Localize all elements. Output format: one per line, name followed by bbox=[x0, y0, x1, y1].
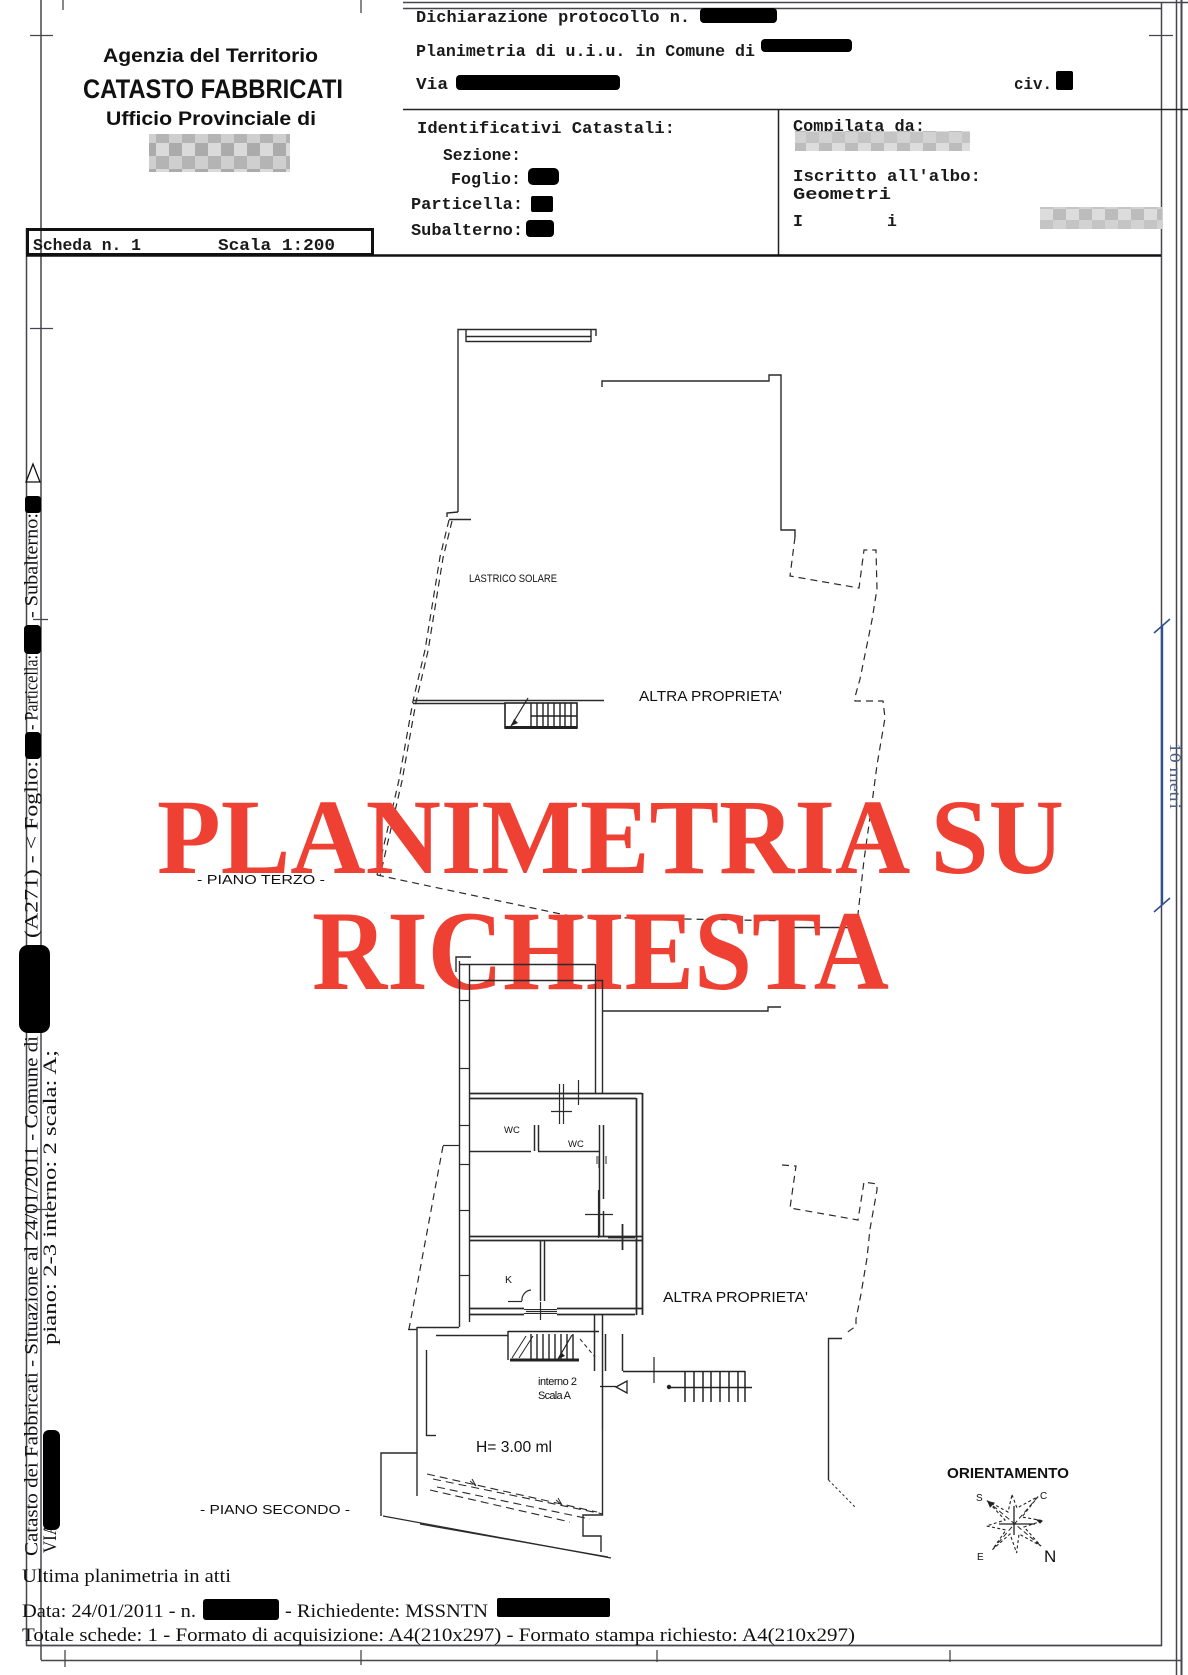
svg-text:N: N bbox=[1044, 1547, 1056, 1566]
svg-text:Scheda n. 1: Scheda n. 1 bbox=[33, 236, 141, 255]
svg-text:Dichiarazione protocollo n.: Dichiarazione protocollo n. bbox=[416, 8, 690, 27]
svg-text:Ufficio Provinciale di: Ufficio Provinciale di bbox=[106, 109, 316, 130]
svg-text:piano: 2-3 interno: 2 scala: A: piano: 2-3 interno: 2 scala: A; bbox=[40, 1050, 61, 1345]
svg-text:Sezione:: Sezione: bbox=[443, 146, 521, 165]
svg-text:Data: 24/01/2011 - n.: Data: 24/01/2011 - n. bbox=[22, 1601, 196, 1622]
svg-text:Scala 1:200: Scala 1:200 bbox=[218, 236, 335, 255]
svg-text:- Particella:: - Particella: bbox=[22, 655, 43, 730]
svg-text:E: E bbox=[977, 1552, 984, 1563]
svg-text:H= 3.00 ml: H= 3.00 ml bbox=[476, 1439, 552, 1456]
svg-text:Totale schede: 1 - Formato di: Totale schede: 1 - Formato di acquisizio… bbox=[22, 1625, 855, 1646]
svg-text:S: S bbox=[976, 1493, 983, 1504]
svg-text:- PIANO SECONDO -: - PIANO SECONDO - bbox=[200, 1502, 350, 1517]
svg-text:ALTRA PROPRIETA': ALTRA PROPRIETA' bbox=[639, 689, 782, 705]
svg-text:Iscritto all'albo:: Iscritto all'albo: bbox=[793, 167, 981, 186]
svg-text:LASTRICO SOLARE: LASTRICO SOLARE bbox=[469, 573, 557, 585]
svg-text:PLANIMETRIA SU: PLANIMETRIA SU bbox=[157, 779, 1064, 897]
svg-text:Subalterno:: Subalterno: bbox=[411, 221, 523, 240]
svg-text:I: I bbox=[793, 212, 803, 231]
svg-text:Via: Via bbox=[416, 75, 448, 94]
svg-text:Scala A: Scala A bbox=[538, 1390, 572, 1402]
svg-text:(A271) - < Foglio:: (A271) - < Foglio: bbox=[22, 761, 43, 938]
svg-text:10 metri: 10 metri bbox=[1166, 743, 1183, 810]
svg-text:Identificativi Catastali:: Identificativi Catastali: bbox=[417, 119, 675, 138]
svg-text:ORIENTAMENTO: ORIENTAMENTO bbox=[947, 1465, 1069, 1482]
svg-text:Particella:: Particella: bbox=[411, 195, 523, 214]
svg-text:K: K bbox=[505, 1274, 512, 1286]
svg-text:Ultima planimetria in atti: Ultima planimetria in atti bbox=[22, 1566, 231, 1587]
svg-text:- Richiedente: MSSNTN: - Richiedente: MSSNTN bbox=[285, 1601, 488, 1622]
svg-text:Planimetria di u.i.u. in Comun: Planimetria di u.i.u. in Comune di bbox=[416, 42, 755, 61]
svg-text:interno 2: interno 2 bbox=[538, 1376, 577, 1388]
svg-text:ALTRA PROPRIETA': ALTRA PROPRIETA' bbox=[663, 1290, 808, 1306]
svg-text:WC: WC bbox=[504, 1125, 520, 1136]
svg-text:WC: WC bbox=[568, 1139, 584, 1150]
svg-text:Geometri: Geometri bbox=[793, 185, 891, 204]
svg-text:C: C bbox=[1040, 1491, 1047, 1502]
svg-text:i: i bbox=[887, 212, 897, 231]
svg-text:civ.: civ. bbox=[1014, 75, 1052, 94]
svg-text:Foglio:: Foglio: bbox=[451, 170, 521, 189]
svg-text:RICHIESTA: RICHIESTA bbox=[312, 889, 889, 1014]
svg-text:CATASTO FABBRICATI: CATASTO FABBRICATI bbox=[83, 74, 343, 104]
svg-text:- Subalterno:: - Subalterno: bbox=[22, 513, 43, 618]
svg-text:Agenzia del Territorio: Agenzia del Territorio bbox=[103, 46, 318, 67]
